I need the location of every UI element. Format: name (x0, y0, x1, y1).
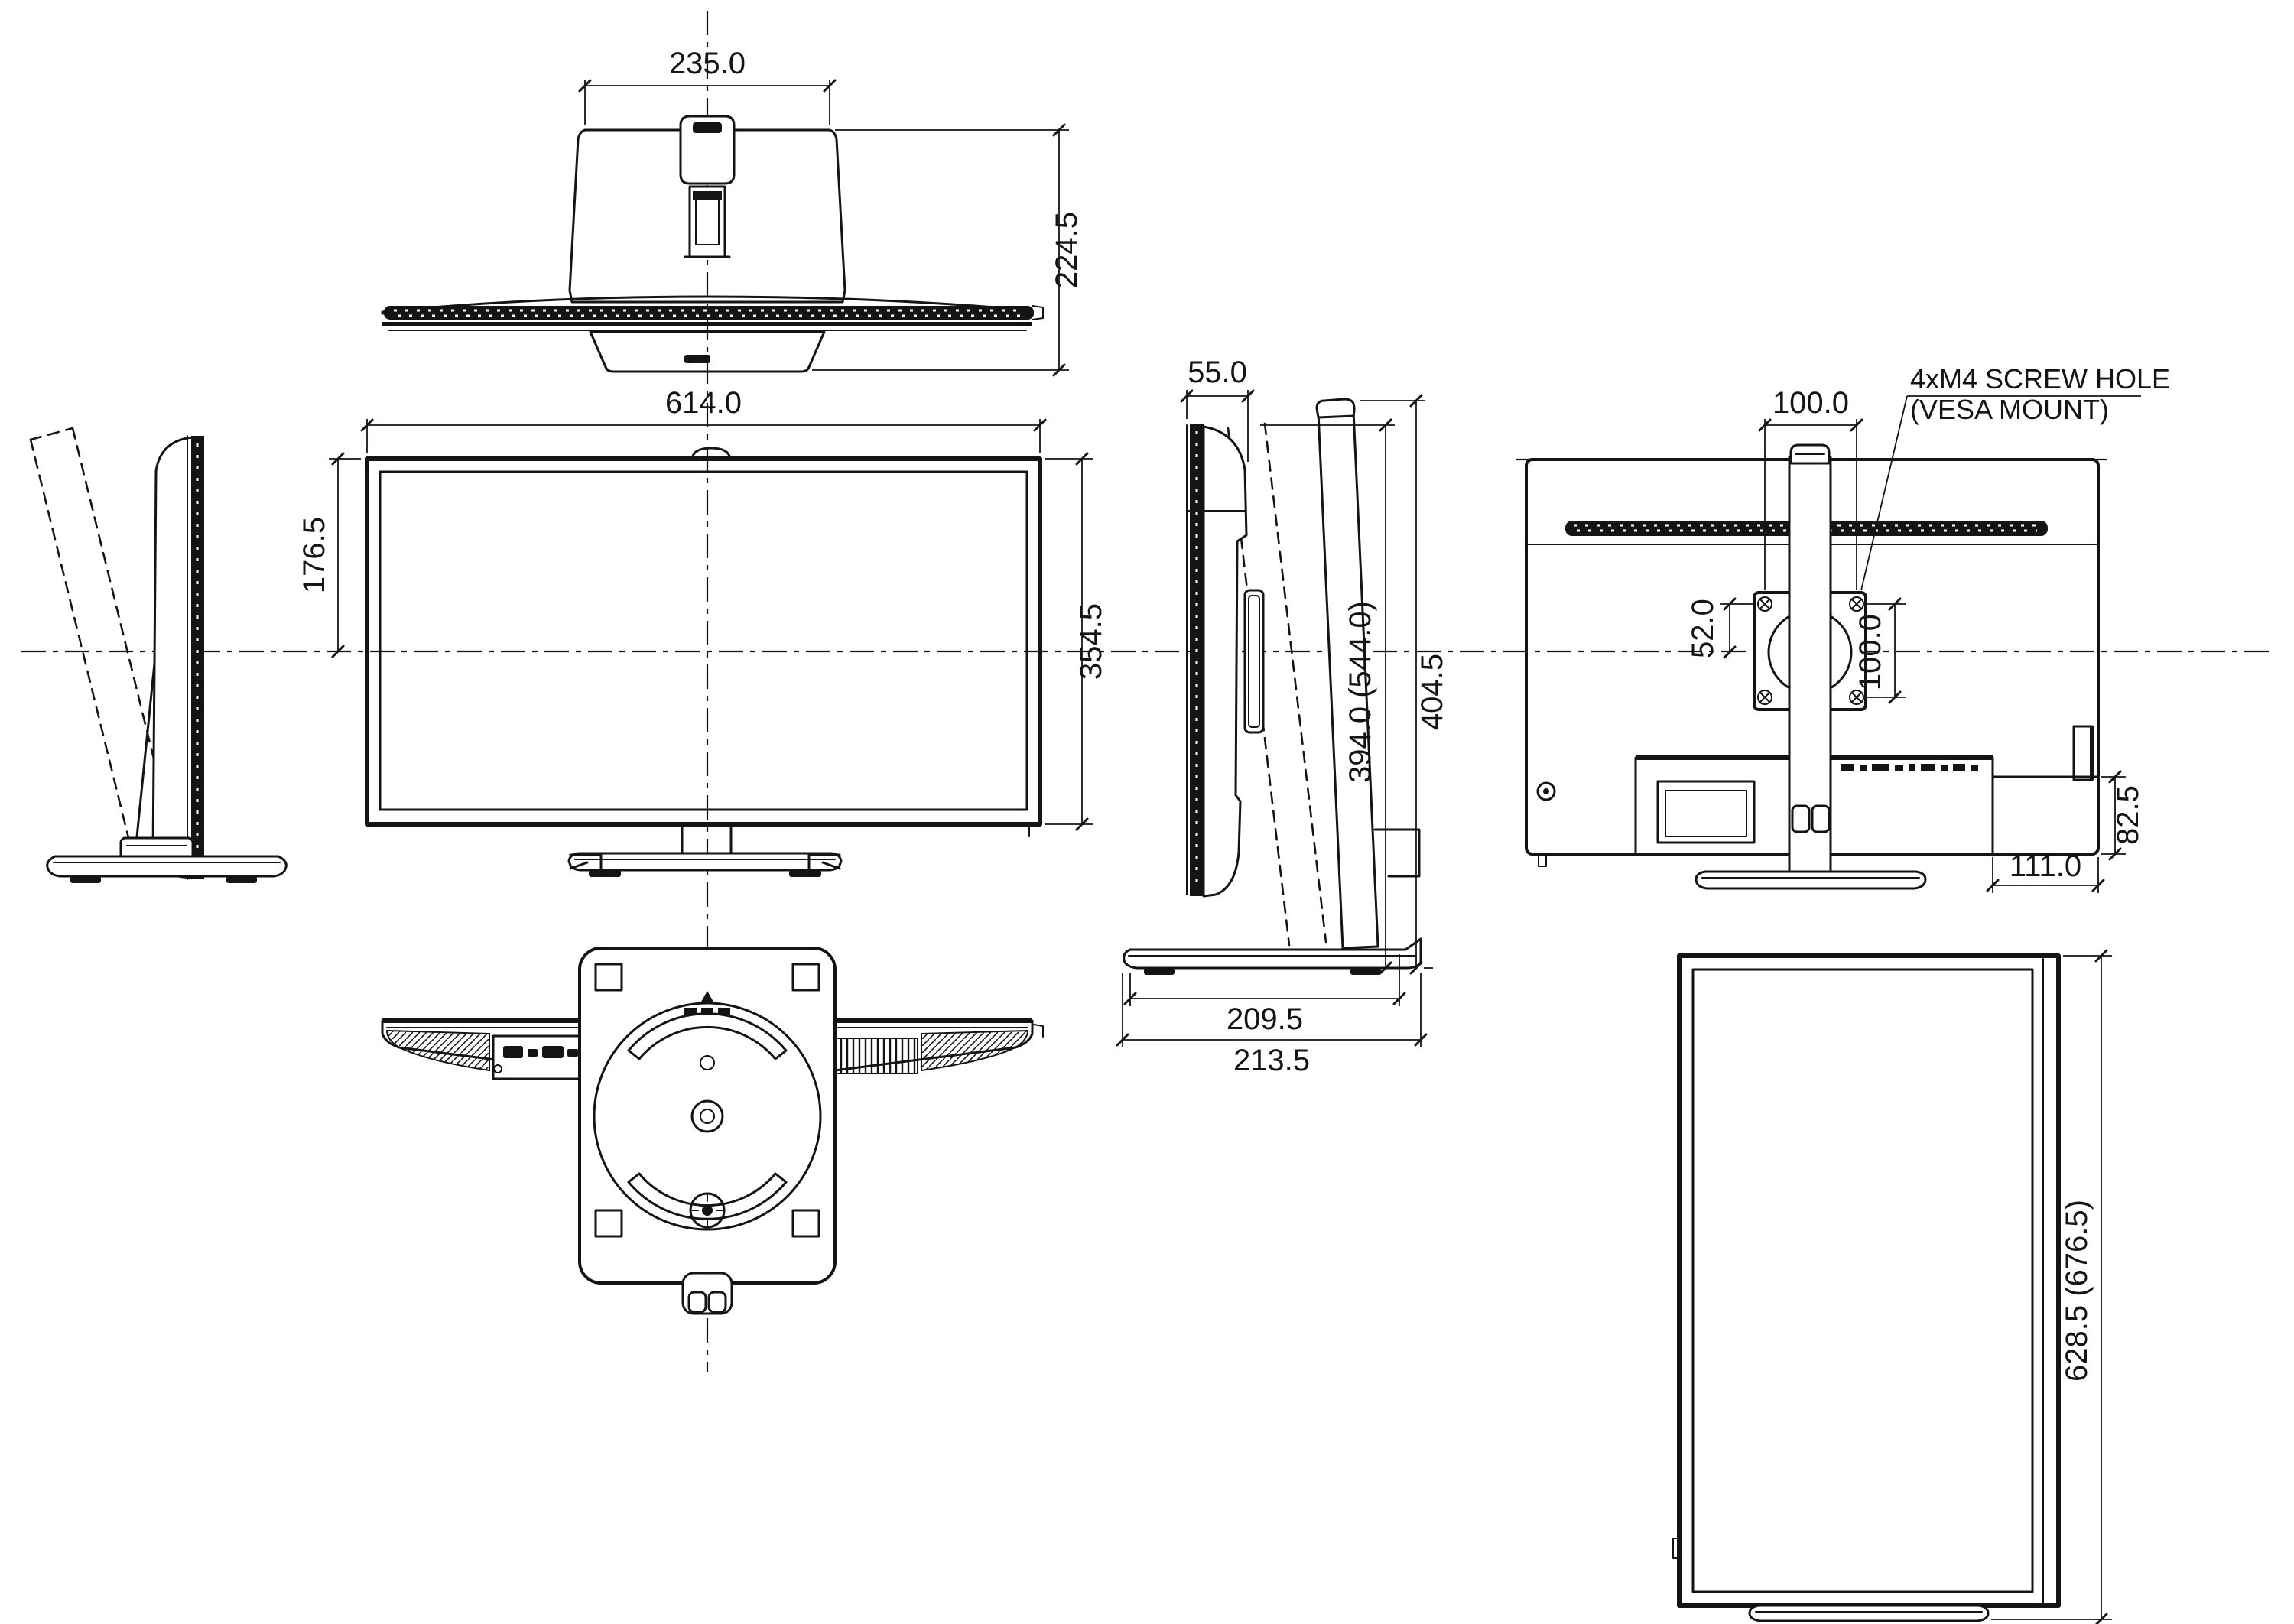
dim-label-side-height-min-max: 394.0 (544.0) (1344, 601, 1377, 783)
left-wing-grille (387, 1031, 489, 1070)
dim-corner-box-width: 111.0 (1987, 849, 2104, 893)
dim-label-portrait-height: 628.5 (676.5) (2060, 1200, 2094, 1382)
hook-left (689, 1292, 706, 1312)
dim-label-side-base: 213.5 (1233, 1044, 1310, 1077)
cable-holder-left (1792, 806, 1809, 832)
front-screen (380, 472, 1027, 810)
front-view: 614.0 176.5 354.5 (297, 386, 1108, 877)
right-wing-grille (921, 1031, 1028, 1070)
dim-label-corner-box-height: 82.5 (2111, 785, 2145, 845)
side-screen-strip (1190, 424, 1204, 896)
top-view: 235.0 224.5 (382, 47, 1084, 375)
dim-vesa-top-offset: 52.0 (1686, 599, 1756, 658)
left-foot-1 (70, 876, 101, 883)
dim-corner-box-height: 82.5 (2101, 771, 2145, 859)
dim-portrait-height: 628.5 (676.5) (1991, 950, 2112, 1624)
portrait-view: 628.5 (676.5) (1673, 950, 2112, 1624)
side-hinge-plate (1245, 590, 1263, 732)
rear-view: 100.0 4xM4 SCREW HOLE (VESA MOUNT) 52.0 … (1516, 363, 2170, 893)
dim-label-front-height: 354.5 (1074, 603, 1108, 680)
portrait-base (1750, 1606, 1988, 1621)
side-foot-2 (1350, 968, 1381, 975)
dim-label-corner-box-width: 111.0 (2010, 849, 2081, 883)
top-vent-strip (384, 306, 1034, 320)
tilt-phantom-back (31, 440, 130, 844)
rear-label-inner (1665, 791, 1746, 836)
kensington-tab (2074, 726, 2092, 780)
left-foot-2 (226, 876, 257, 883)
front-foot-left (589, 870, 621, 877)
dim-label-top-base-width: 235.0 (669, 47, 746, 80)
dim-label-front-width: 614.0 (665, 386, 742, 420)
rear-base (1696, 872, 1925, 888)
power-button-dot (1543, 788, 1549, 794)
column-cap-mark (693, 191, 722, 200)
dim-label-side-depth: 55.0 (1188, 356, 1247, 389)
logo-mark (684, 355, 710, 363)
dim-label-vesa-width: 100.0 (1772, 386, 1849, 420)
vesa-note-line2: (VESA MOUNT) (1910, 394, 2109, 425)
centerlines (21, 11, 2273, 1372)
technical-drawing-sheet: 235.0 224.5 6 (0, 0, 2294, 1624)
front-outer-frame (367, 459, 1040, 824)
side-back-cover (1204, 427, 1246, 896)
rear-left-foot (1539, 854, 1546, 866)
plate-screw-lower-dot (702, 1205, 713, 1216)
rear-port-row (1841, 764, 1978, 771)
dim-front-width: 614.0 (362, 386, 1045, 453)
right-vent-block (835, 1038, 918, 1073)
dim-front-upper-height: 176.5 (297, 453, 361, 657)
dim-label-top-depth: 224.5 (1050, 212, 1084, 288)
side-rear-bracket (1375, 830, 1419, 876)
dim-label-front-upper-height: 176.5 (297, 517, 331, 593)
left-side-view (31, 428, 286, 883)
side-foot-1 (1144, 968, 1175, 975)
bottom-view (382, 948, 1043, 1314)
wing-right-hook (1034, 1025, 1043, 1037)
dim-label-side-total-height: 404.5 (1415, 654, 1449, 730)
portrait-screen (1693, 970, 2032, 1592)
dim-front-height: 354.5 (1045, 453, 1108, 830)
side-phantom-line2 (1265, 424, 1326, 942)
clamp-slot (693, 122, 722, 133)
portrait-outer (1679, 956, 2058, 1606)
vesa-note-line1: 4xM4 SCREW HOLE (1910, 363, 2170, 395)
front-stand-base (569, 853, 841, 870)
vesa-note: 4xM4 SCREW HOLE (VESA MOUNT) (1861, 363, 2170, 590)
side-column-cap (1317, 399, 1354, 417)
top-edge-notch (1032, 306, 1043, 320)
dim-top-depth: 224.5 (812, 125, 1084, 375)
dim-label-vesa-top-offset: 52.0 (1686, 599, 1720, 658)
dim-label-vesa-height: 100.0 (1854, 614, 1887, 690)
left-base (47, 856, 287, 876)
index-marks (684, 1008, 730, 1015)
monitor-dimension-drawing: 235.0 224.5 6 (0, 0, 2294, 1624)
hook-right (709, 1292, 726, 1312)
dim-label-side-base-inner: 209.5 (1227, 1002, 1303, 1036)
cable-holder-right (1812, 806, 1829, 832)
right-side-view: 55.0 394.0 (544.0) 404.5 209.5 (1117, 356, 1449, 1077)
tilt-phantom-top (31, 428, 73, 440)
front-foot-right (789, 870, 821, 877)
